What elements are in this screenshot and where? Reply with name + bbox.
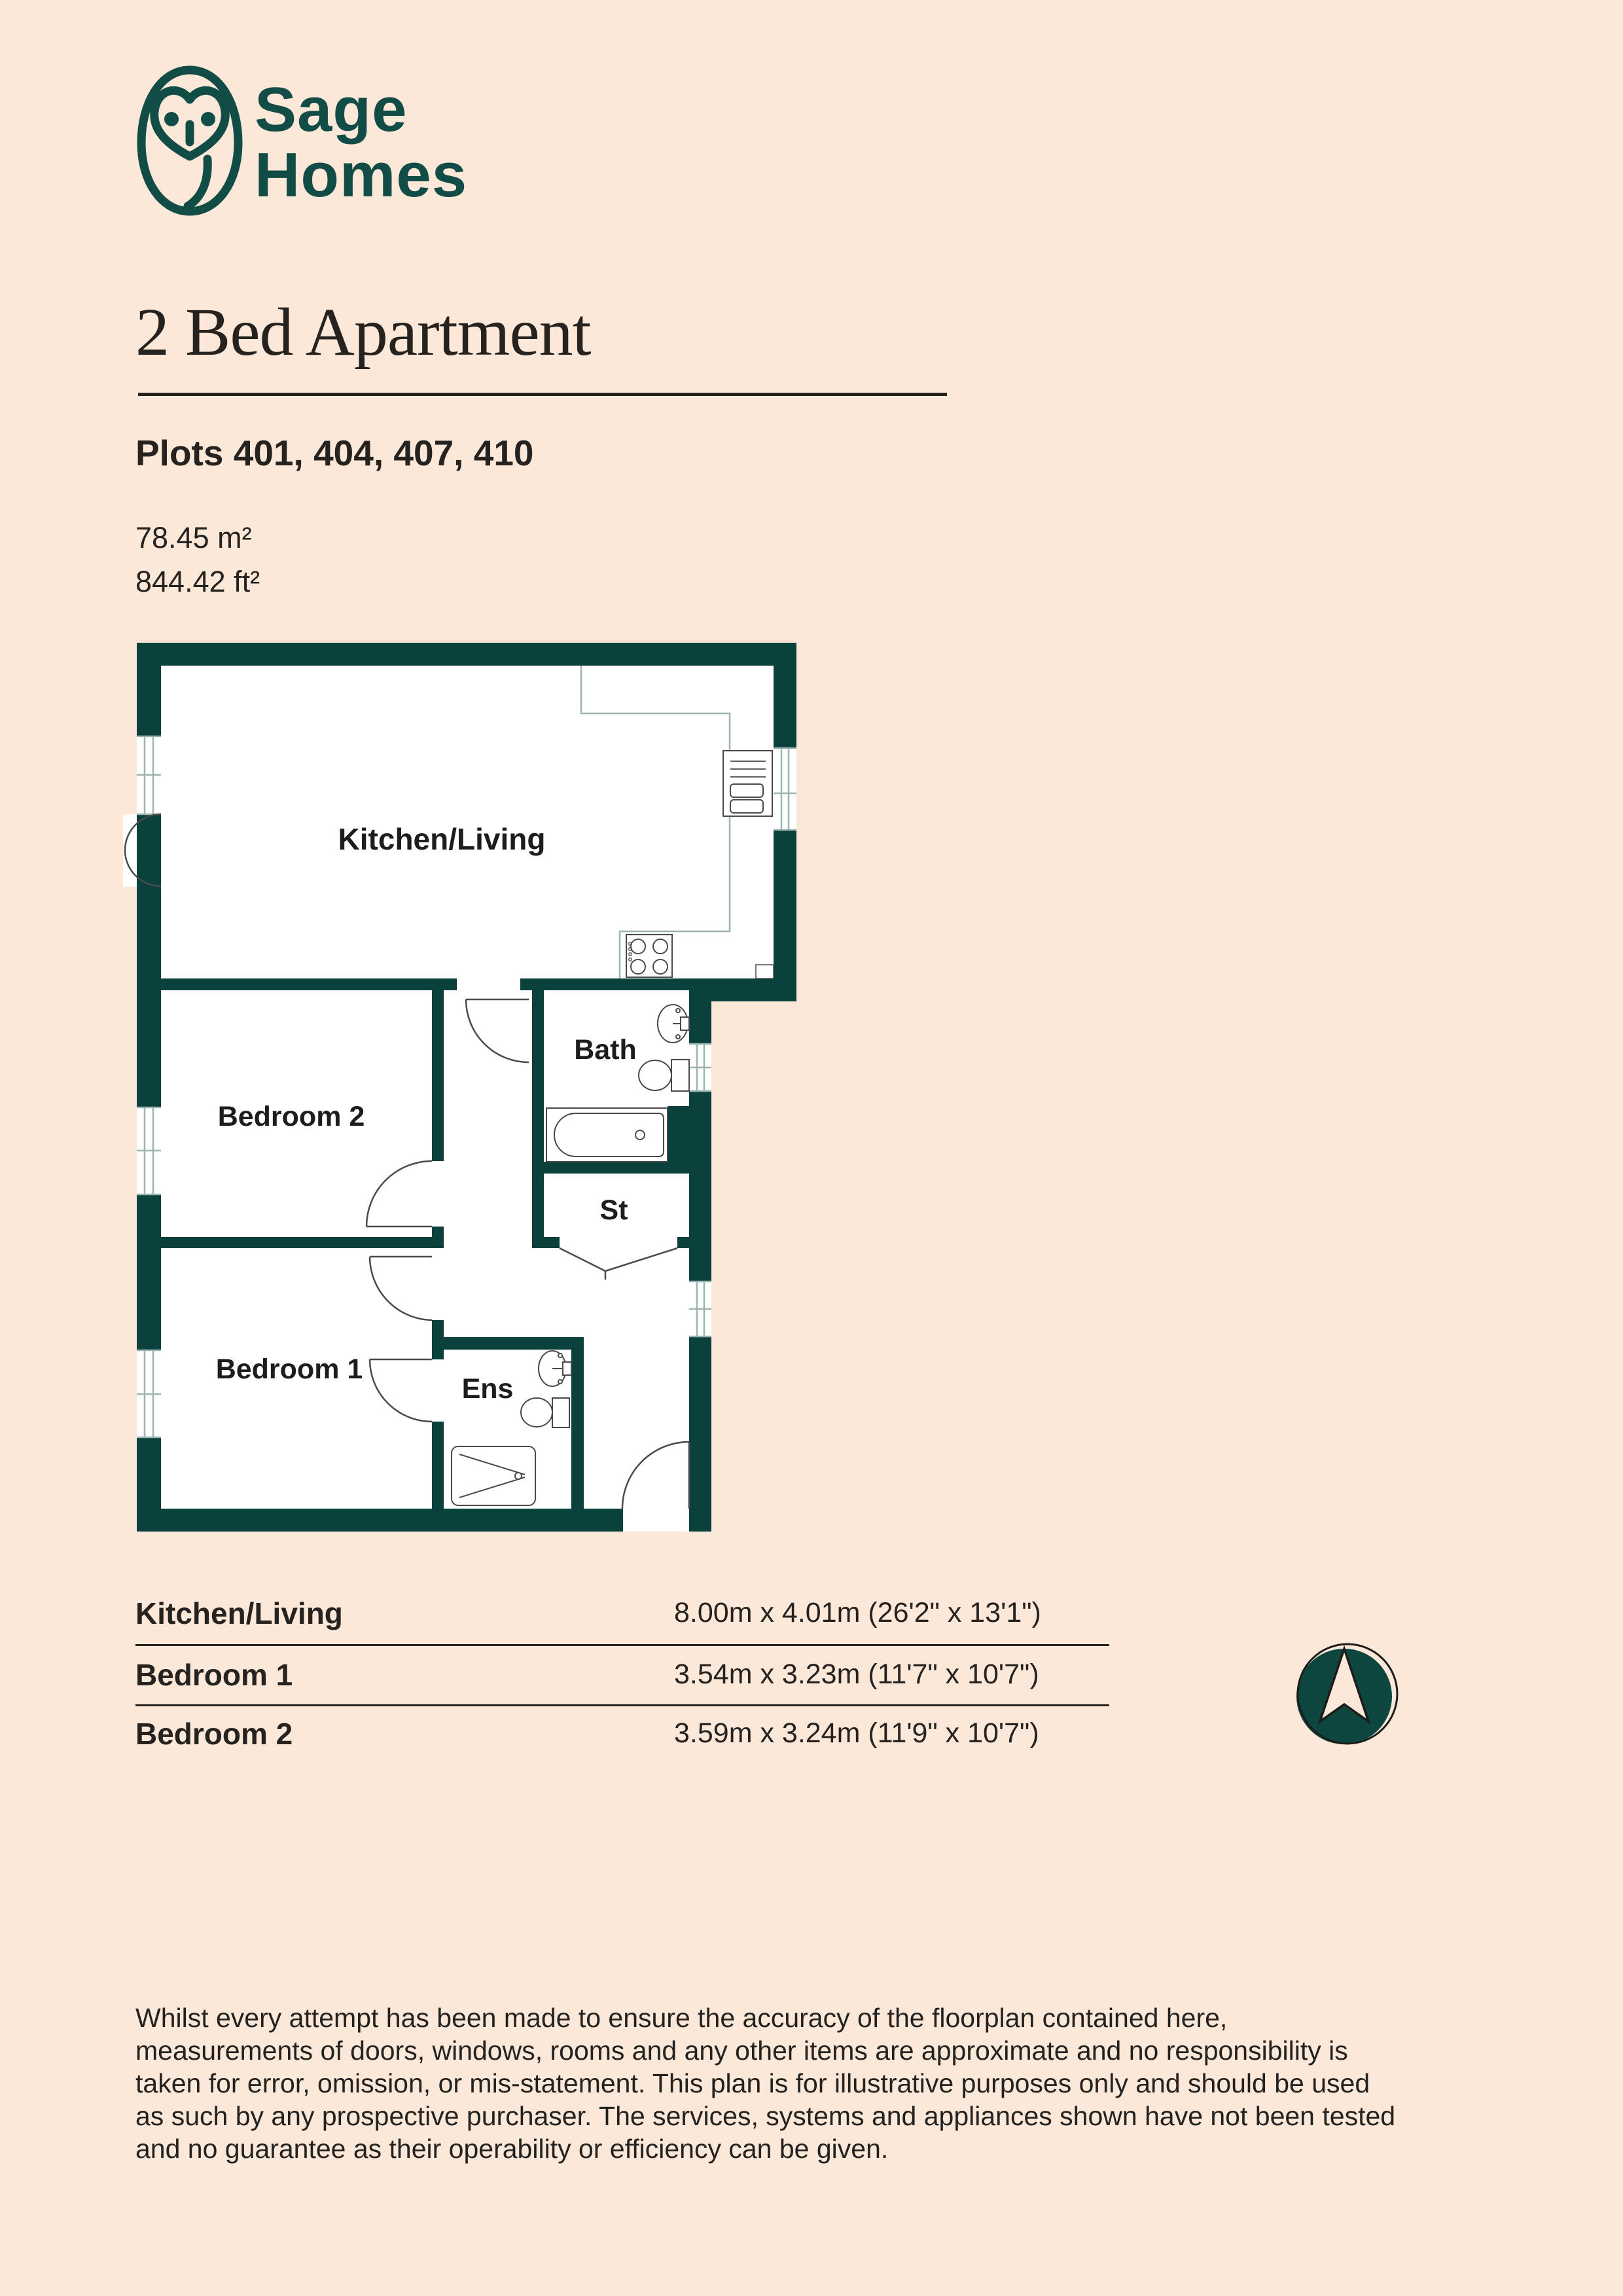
disclaimer-line: taken for error, omission, or mis-statem…	[135, 2067, 1395, 2100]
brand-line1: Sage	[255, 77, 467, 143]
room-label-bath: Bath	[574, 1034, 637, 1066]
disclaimer-line: and no guarantee as their operability or…	[135, 2132, 1395, 2165]
hob-icon	[626, 935, 672, 977]
sage-homes-owl-icon	[134, 65, 245, 216]
window-bedroom1-icon	[137, 1350, 161, 1437]
room-label-kitchen-living: Kitchen/Living	[338, 822, 546, 856]
row-name: Bedroom 1	[135, 1658, 293, 1692]
title-divider	[138, 393, 947, 396]
disclaimer-line: as such by any prospective purchaser. Th…	[135, 2100, 1395, 2132]
page-title: 2 Bed Apartment	[135, 293, 591, 371]
unit-areas: 78.45 m² 844.42 ft²	[135, 516, 260, 603]
row-name: Bedroom 2	[135, 1717, 293, 1751]
table-row: Kitchen/Living 8.00m x 4.01m (26'2" x 13…	[135, 1596, 1109, 1641]
disclaimer-line: Whilst every attempt has been made to en…	[135, 2001, 1395, 2034]
window-kitchen-left-icon	[137, 736, 161, 814]
room-label-storage: St	[600, 1194, 628, 1226]
bathtub-icon	[546, 1108, 668, 1162]
plots-subtitle: Plots 401, 404, 407, 410	[135, 432, 534, 474]
area-m2: 78.45 m²	[135, 516, 260, 560]
brochure-page: { "page": { "background": "#fce8d8", "wa…	[0, 0, 1623, 2296]
row-size: 3.54m x 3.23m (11'7" x 10'7")	[674, 1659, 1039, 1691]
kitchen-sink-icon	[723, 751, 772, 816]
room-label-ensuite: Ens	[462, 1373, 514, 1405]
window-hall-right-icon	[689, 1282, 711, 1336]
brand-wordmark: Sage Homes	[255, 77, 467, 208]
brand-line2: Homes	[255, 143, 467, 208]
table-row: Bedroom 1 3.54m x 3.23m (11'7" x 10'7")	[135, 1657, 1109, 1703]
window-kitchen-right-icon	[774, 748, 796, 830]
north-arrow-compass-icon	[1292, 1643, 1403, 1754]
disclaimer: Whilst every attempt has been made to en…	[135, 2001, 1395, 2165]
window-bath-icon	[689, 1044, 711, 1091]
disclaimer-line: measurements of doors, windows, rooms an…	[135, 2034, 1395, 2067]
ensuite-toilet-icon	[521, 1398, 569, 1427]
table-row: Bedroom 2 3.59m x 3.24m (11'9" x 10'7")	[135, 1716, 1109, 1762]
row-size: 8.00m x 4.01m (26'2" x 13'1")	[674, 1597, 1041, 1629]
window-bedroom2-icon	[137, 1107, 161, 1194]
table-divider	[135, 1704, 1109, 1706]
row-size: 3.59m x 3.24m (11'9" x 10'7")	[674, 1717, 1039, 1749]
room-label-bedroom1: Bedroom 1	[216, 1354, 363, 1385]
floorplan: Kitchen/Living Bedroom 2 Bath St Bedroom…	[118, 622, 851, 1538]
table-divider	[135, 1644, 1109, 1646]
bath-toilet-icon	[639, 1060, 689, 1091]
area-ft2: 844.42 ft²	[135, 560, 260, 603]
row-name: Kitchen/Living	[135, 1596, 343, 1630]
room-label-bedroom2: Bedroom 2	[218, 1101, 365, 1132]
shower-icon	[452, 1446, 535, 1505]
